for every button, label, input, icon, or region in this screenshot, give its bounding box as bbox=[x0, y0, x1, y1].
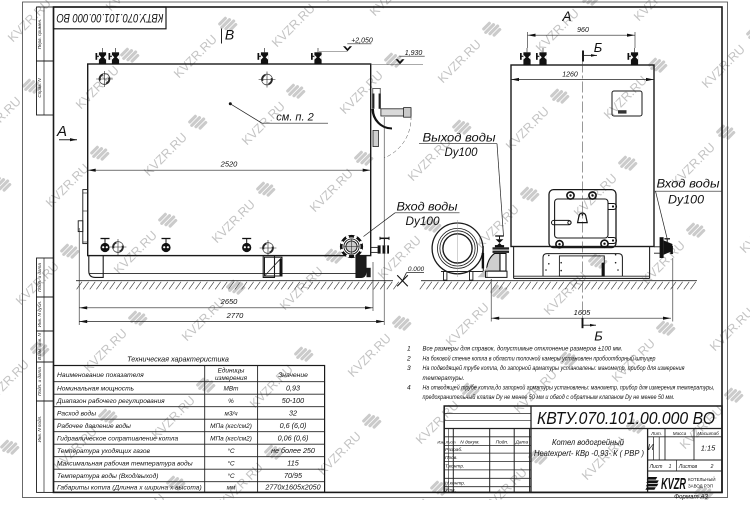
svg-text:Единицы: Единицы bbox=[218, 367, 245, 375]
svg-text:1: 1 bbox=[669, 464, 672, 470]
svg-text:КВТУ.070.101.00.000 ВО: КВТУ.070.101.00.000 ВО bbox=[537, 408, 715, 428]
svg-text:В: В bbox=[225, 27, 234, 43]
svg-text:Значение: Значение bbox=[278, 372, 308, 379]
svg-text:МПа (кгс/см2): МПа (кгс/см2) bbox=[210, 423, 252, 430]
svg-text:Dy100: Dy100 bbox=[406, 214, 440, 228]
svg-text:KVZR: KVZR bbox=[661, 476, 686, 493]
svg-text:50-100: 50-100 bbox=[282, 396, 304, 405]
svg-text:1605: 1605 bbox=[574, 308, 592, 317]
svg-text:Лит.: Лит. bbox=[650, 431, 662, 436]
svg-text:0,06 (0,6): 0,06 (0,6) bbox=[278, 433, 309, 442]
svg-text:0,6 (6,0): 0,6 (6,0) bbox=[280, 421, 307, 430]
svg-text:Инв. N подл.: Инв. N подл. bbox=[37, 416, 42, 443]
svg-text:Dy100: Dy100 bbox=[668, 193, 704, 207]
svg-text:Габариты котла (Длинна х ширин: Габариты котла (Длинна х ширина х высота… bbox=[57, 483, 202, 491]
svg-text:0.000: 0.000 bbox=[408, 266, 425, 273]
svg-text:Dy100: Dy100 bbox=[445, 145, 478, 159]
svg-text:На боковой стенке котла в обла: На боковой стенке котла в области топочн… bbox=[423, 354, 656, 362]
svg-text:КОТЕЛЬНЫЙ: КОТЕЛЬНЫЙ bbox=[688, 477, 716, 482]
svg-text:Максимальная рабочая температу: Максимальная рабочая температура воды bbox=[57, 459, 193, 467]
svg-text:мм: мм bbox=[227, 484, 236, 491]
svg-text:Вход воды: Вход воды bbox=[657, 177, 720, 191]
svg-text:Наименование показателя: Наименование показателя bbox=[57, 372, 144, 379]
svg-text:МВт: МВт bbox=[224, 385, 240, 392]
svg-text:КВТУ.070.101.00.000 ВО: КВТУ.070.101.00.000 ВО bbox=[56, 11, 163, 23]
svg-text:1:15: 1:15 bbox=[701, 444, 716, 453]
svg-text:2: 2 bbox=[710, 464, 714, 470]
svg-text:2650: 2650 bbox=[220, 297, 239, 306]
svg-text:А: А bbox=[561, 9, 571, 24]
svg-text:Подп. и дата: Подп. и дата bbox=[37, 367, 42, 396]
svg-text:Выход воды: Выход воды bbox=[423, 131, 496, 145]
svg-text:32: 32 bbox=[289, 408, 297, 417]
svg-text:0,93: 0,93 bbox=[286, 383, 300, 392]
svg-text:%: % bbox=[228, 398, 234, 405]
svg-text:Взам. инв. N: Взам. инв. N bbox=[37, 332, 42, 359]
svg-text:Масштаб: Масштаб bbox=[697, 431, 719, 436]
svg-text:Номинальная мощность: Номинальная мощность bbox=[57, 385, 135, 392]
svg-text:1: 1 bbox=[407, 346, 411, 353]
svg-text:Инв. N дубл.: Инв. N дубл. bbox=[37, 301, 42, 328]
svg-text:Н.контр.: Н.контр. bbox=[445, 480, 465, 486]
svg-text:Техническая характеристика: Техническая характеристика bbox=[127, 355, 229, 364]
svg-text:4: 4 bbox=[407, 385, 411, 392]
svg-text:Т.контр.: Т.контр. bbox=[445, 463, 464, 469]
svg-text:Расход воды: Расход воды bbox=[57, 409, 96, 417]
svg-text:ЗАВОД РЭП: ЗАВОД РЭП bbox=[688, 484, 713, 489]
svg-text:И: И bbox=[648, 442, 655, 452]
svg-text:Диапазон рабочего регулировани: Диапазон рабочего регулирования bbox=[56, 397, 165, 405]
svg-text:3: 3 bbox=[407, 365, 411, 372]
svg-text:Подп.: Подп. bbox=[496, 440, 509, 446]
svg-text:°С: °С bbox=[227, 472, 235, 480]
svg-text:А: А bbox=[56, 123, 67, 140]
svg-text:1260: 1260 bbox=[562, 72, 578, 79]
svg-text:Дата: Дата bbox=[514, 440, 528, 446]
svg-text:Рабочее давление воды: Рабочее давление воды bbox=[57, 422, 131, 430]
svg-text:Б: Б bbox=[594, 40, 603, 55]
svg-text:Подп. и дата: Подп. и дата bbox=[37, 263, 42, 292]
svg-text:Вход воды: Вход воды bbox=[397, 200, 458, 214]
svg-text:На отводящей трубе котла,до за: На отводящей трубе котла,до запорной арм… bbox=[423, 384, 715, 392]
svg-text:Все размеры для справок, допус: Все размеры для справок, допустимые откл… bbox=[423, 345, 623, 353]
svg-text:2770: 2770 bbox=[226, 311, 245, 320]
svg-text:температуры.: температуры. bbox=[423, 375, 465, 382]
svg-text:предохранительный клапан Dу н: предохранительный клапан Dу не менее 50 … bbox=[423, 393, 675, 401]
svg-text:Б: Б bbox=[594, 329, 603, 344]
svg-text:960: 960 bbox=[577, 27, 589, 34]
svg-text:N докум.: N докум. bbox=[460, 440, 479, 446]
svg-text:измерения: измерения bbox=[215, 375, 248, 382]
svg-text:МПа (кгс/см2): МПа (кгс/см2) bbox=[210, 435, 252, 442]
svg-text:Лист: Лист bbox=[649, 464, 663, 470]
svg-text:Температура уходящих газов: Температура уходящих газов bbox=[57, 447, 150, 455]
svg-text:Гидравлическое сопративление к: Гидравлическое сопративление котла bbox=[57, 434, 178, 442]
svg-text:2770х1605х2050: 2770х1605х2050 bbox=[264, 482, 320, 491]
svg-text:Перв. примен.: Перв. примен. bbox=[37, 19, 42, 50]
svg-text:Изм.Лист: Изм.Лист bbox=[437, 439, 456, 444]
svg-text:Температура воды (Вход/выход): Температура воды (Вход/выход) bbox=[57, 472, 158, 480]
svg-text:Разраб.: Разраб. bbox=[445, 447, 462, 453]
svg-text:2: 2 bbox=[406, 355, 411, 362]
svg-text:115: 115 bbox=[287, 458, 299, 467]
svg-text:70/95: 70/95 bbox=[284, 471, 303, 480]
svg-text:Пров.: Пров. bbox=[445, 455, 458, 461]
svg-text:°С: °С bbox=[227, 459, 235, 467]
svg-text:Справ. N: Справ. N bbox=[37, 78, 42, 98]
svg-text:см. п. 2: см. п. 2 bbox=[276, 112, 313, 124]
svg-text:2520: 2520 bbox=[220, 160, 239, 169]
svg-text:Формат А3: Формат А3 bbox=[674, 493, 708, 500]
svg-text:не более 250: не более 250 bbox=[271, 446, 315, 455]
svg-text:Листов: Листов bbox=[678, 464, 698, 470]
svg-text:Утв.: Утв. bbox=[445, 487, 456, 493]
svg-text:На подводящей трубе котла, д: На подводящей трубе котла, до запорной а… bbox=[423, 364, 685, 372]
svg-text:Котел водогрейный: Котел водогрейный bbox=[552, 437, 624, 447]
svg-text:Heatexpert- КВр -0,93- К ( РВР: Heatexpert- КВр -0,93- К ( РВР ) bbox=[534, 449, 644, 458]
svg-text:°С: °С bbox=[227, 447, 235, 455]
svg-text:Масса: Масса bbox=[673, 431, 687, 436]
svg-text:м3/ч: м3/ч bbox=[224, 410, 238, 417]
